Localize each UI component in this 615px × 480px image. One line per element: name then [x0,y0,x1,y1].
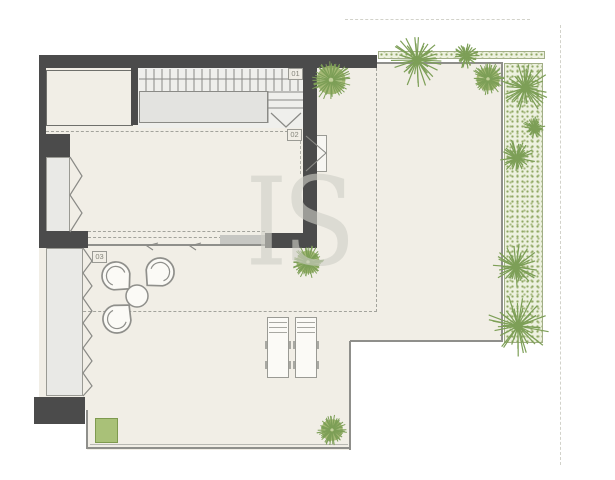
trees-group [293,37,548,445]
tree-icon [493,244,537,287]
tree-icon [317,415,347,445]
stair-direction-arrow [271,113,301,127]
armchair [103,305,131,333]
tree-icon [455,44,479,69]
plan-vector-overlay [0,0,615,480]
window-casement-zigzag [70,157,82,232]
room-label-03: 03 [92,251,107,263]
armchair [146,258,174,286]
door-chevron-1 [147,243,158,250]
tree-icon [489,296,549,357]
door-chevron-2 [190,243,201,250]
armchair [102,262,130,290]
tree-icon [473,63,504,95]
folding-door-zigzag [83,248,92,396]
tree-icon [523,117,545,139]
tree-icon [293,246,324,278]
room-label-02: 02 [287,129,302,141]
tree-icon [312,61,350,99]
stair-treads [139,69,303,123]
furniture-group [102,258,174,333]
tree-icon [391,37,441,87]
floor-plan-canvas: 01 02 03 IS [0,0,615,480]
tree-icon [502,64,547,110]
round-table [126,285,148,307]
room-label-01: 01 [288,68,303,80]
window-right-swing [306,136,326,171]
tree-icon [500,140,534,171]
